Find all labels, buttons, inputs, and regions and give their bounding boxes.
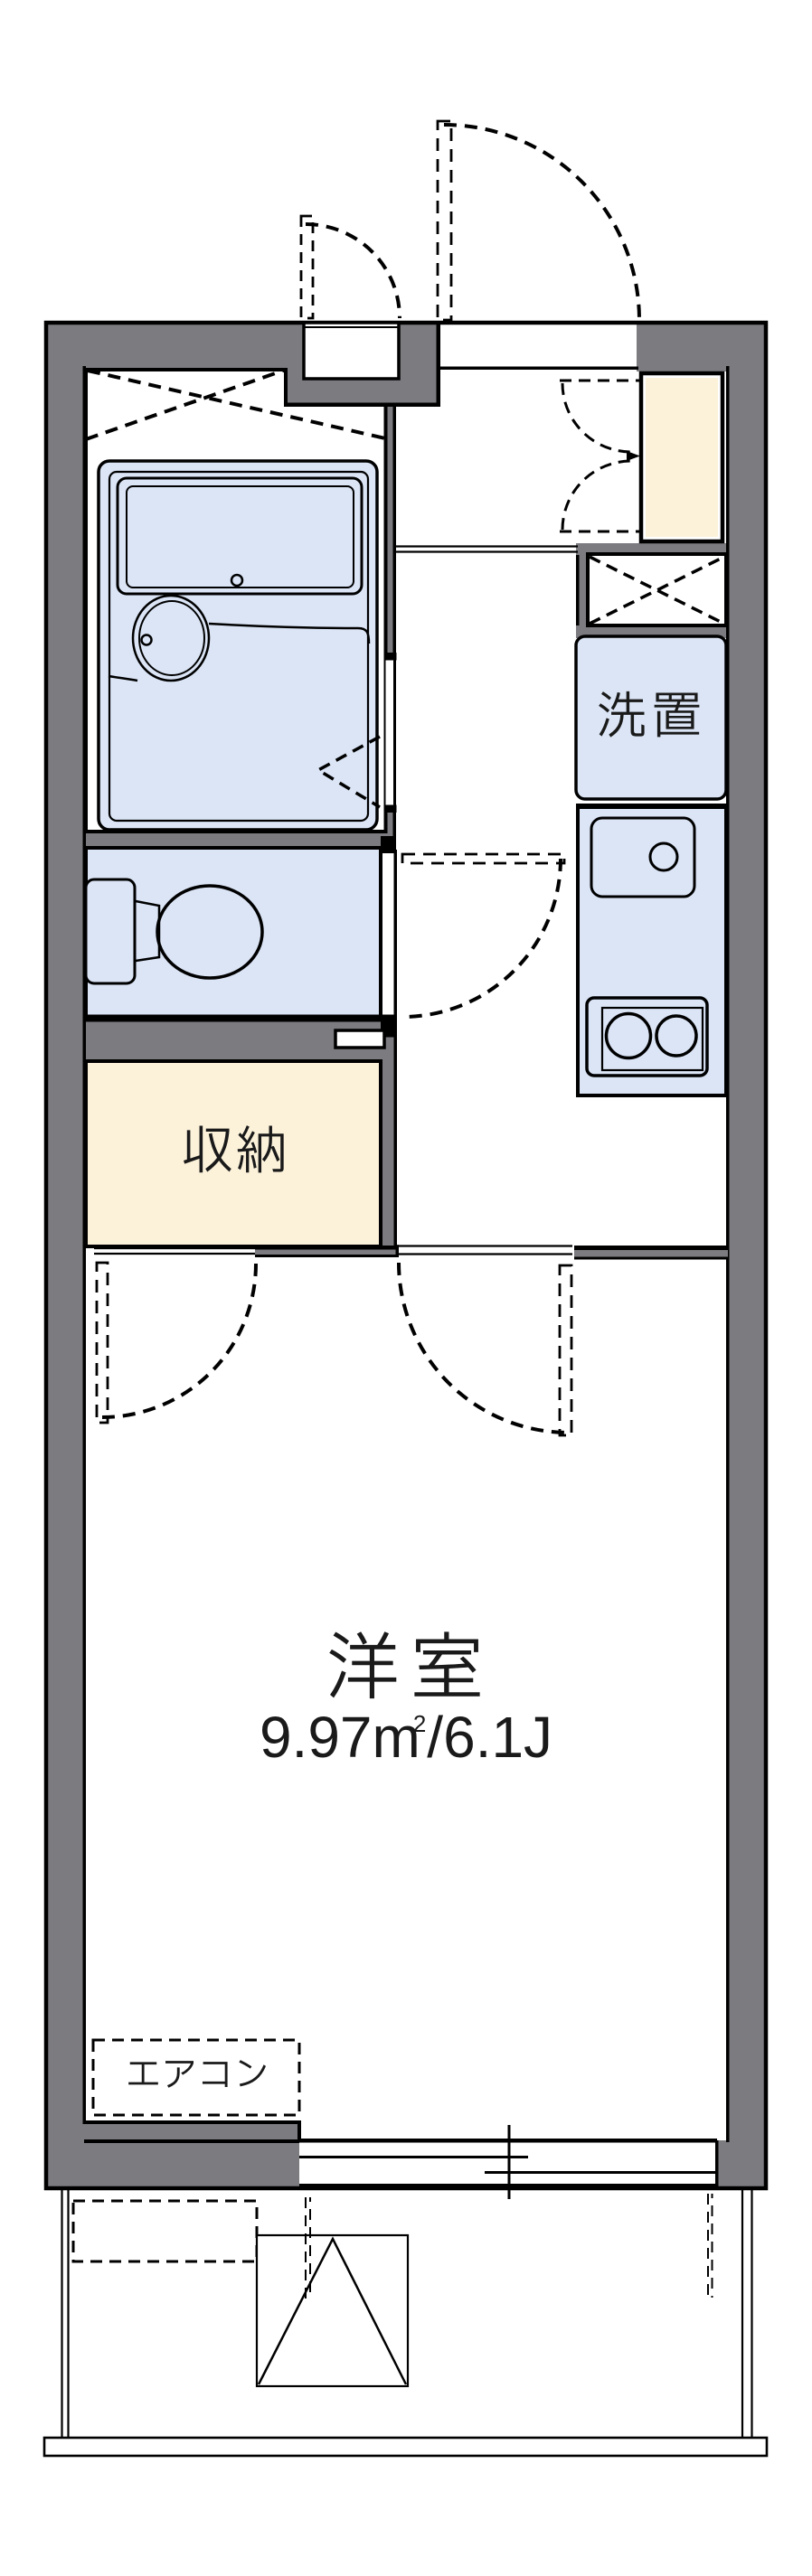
svg-text:9.97m2/6.1J: 9.97m2/6.1J xyxy=(260,1705,552,1770)
